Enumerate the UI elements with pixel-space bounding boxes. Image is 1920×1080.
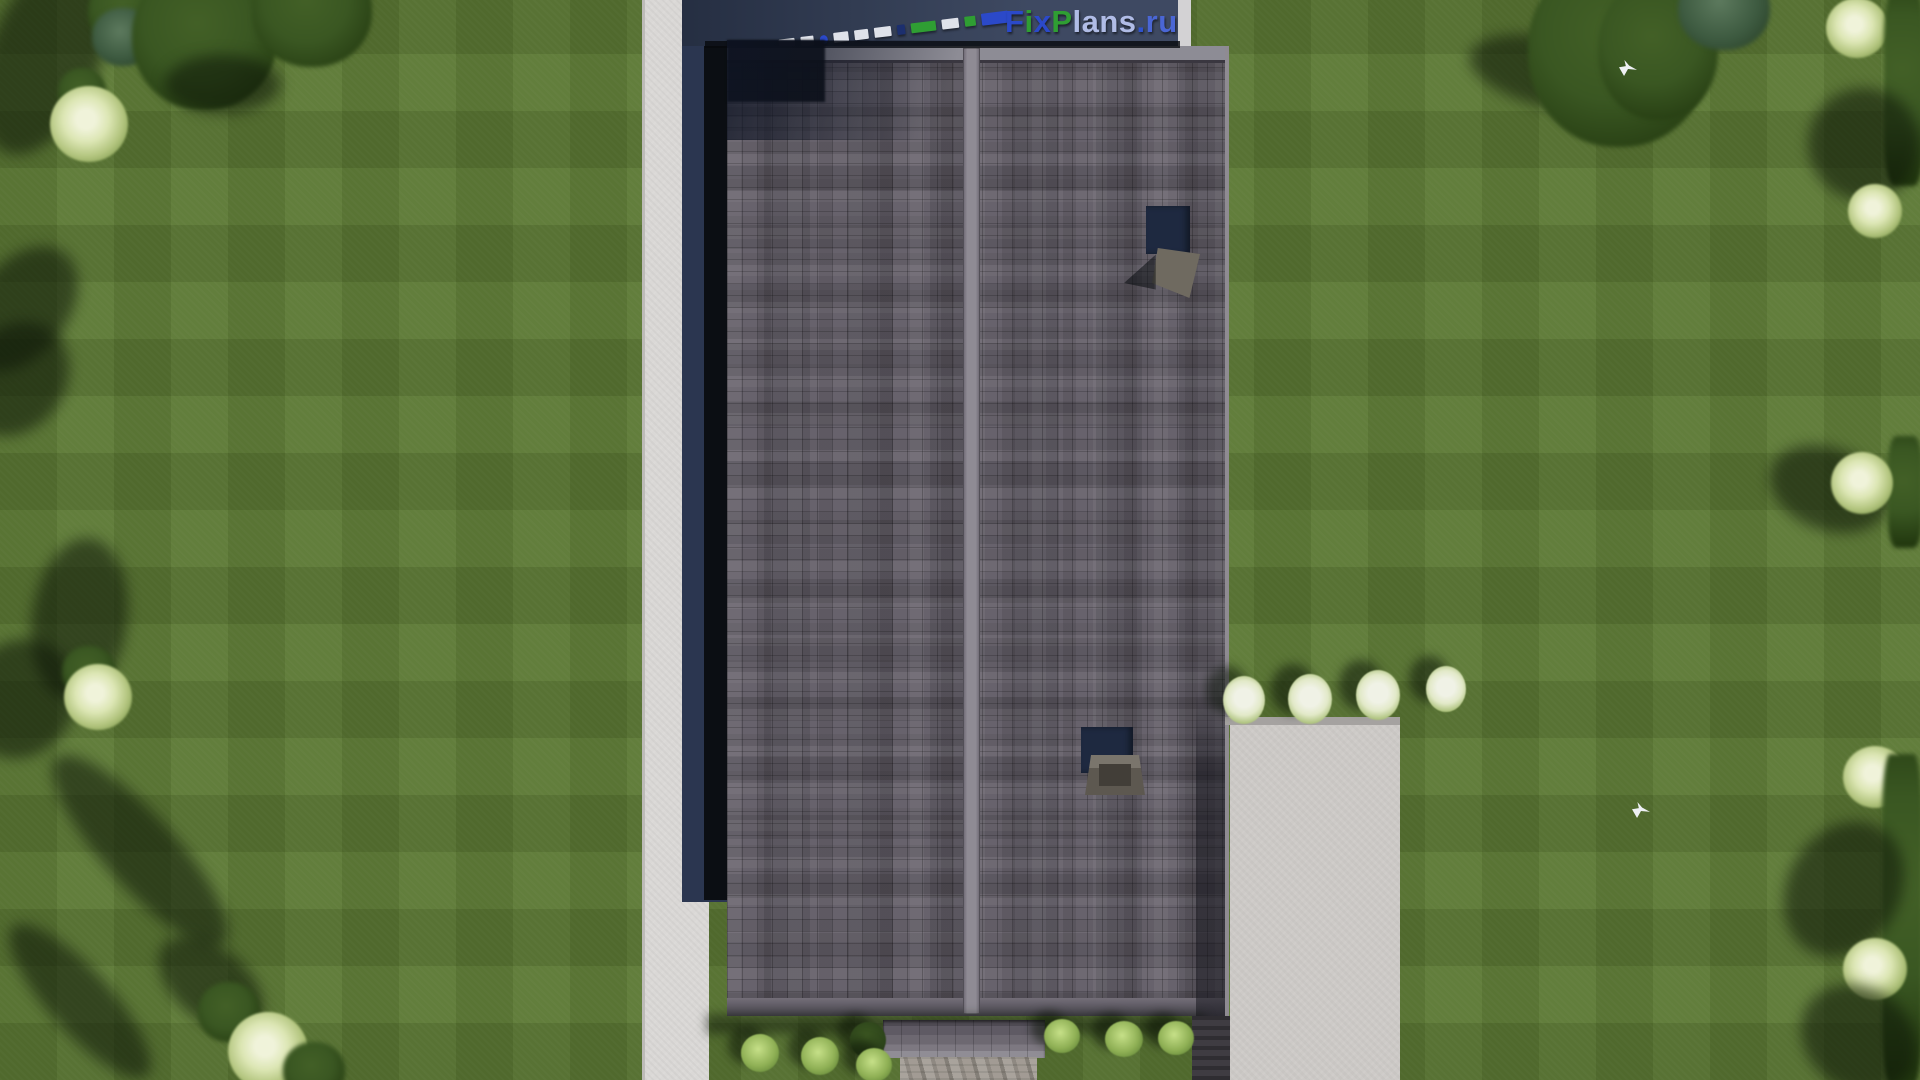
terrace-wall	[1178, 0, 1191, 47]
terrace-block	[854, 29, 869, 41]
watermark-letter: lans	[1073, 4, 1137, 39]
terrace-block	[874, 26, 892, 38]
watermark: FixPlans.ru	[1005, 4, 1178, 40]
chimney-upper	[1146, 206, 1190, 254]
pale-tree	[64, 664, 132, 730]
bush	[801, 1037, 839, 1075]
roof-ridge	[963, 48, 980, 1014]
pale-tree	[1848, 184, 1902, 238]
tree-canopy	[1888, 436, 1920, 548]
terrace-block	[964, 16, 976, 27]
chimney-lower-cap-center	[1099, 764, 1131, 786]
terrace-block	[897, 24, 906, 35]
flower-bush	[1288, 674, 1332, 724]
watermark-letter: F	[1005, 4, 1024, 39]
pale-tree	[1826, 0, 1888, 58]
tree-shadow	[0, 906, 170, 1080]
roof-edge-shadow	[1196, 690, 1225, 1016]
tree-shadow	[30, 734, 251, 968]
roof-shadow-tint	[727, 40, 1027, 140]
flower-bush	[1356, 670, 1400, 720]
bush	[1044, 1019, 1080, 1053]
watermark-letter: i	[1024, 4, 1033, 39]
bush	[856, 1048, 892, 1080]
eave-gap-shadow	[704, 0, 728, 900]
watermark-letter: ru	[1146, 4, 1178, 39]
tree-shadow	[165, 55, 280, 113]
patio	[1230, 723, 1400, 1080]
bush	[1158, 1021, 1194, 1055]
terrace-block	[910, 20, 936, 33]
stone-path	[900, 1057, 1037, 1080]
watermark-letter: .	[1137, 4, 1146, 39]
flower-bush	[1426, 666, 1466, 712]
terrace-block	[941, 18, 959, 30]
bush	[741, 1034, 779, 1072]
pale-tree	[1831, 452, 1893, 514]
bush	[1105, 1021, 1143, 1057]
watermark-letter: x	[1034, 4, 1052, 39]
porch-roof	[883, 1020, 1045, 1058]
aerial-render: FixPlans.ru	[0, 0, 1920, 1080]
watermark-letter: P	[1051, 4, 1072, 39]
pale-tree	[50, 86, 128, 162]
wall-shadow-strip	[1192, 1016, 1230, 1080]
bird	[1632, 802, 1650, 818]
flower-bush	[1223, 676, 1265, 724]
